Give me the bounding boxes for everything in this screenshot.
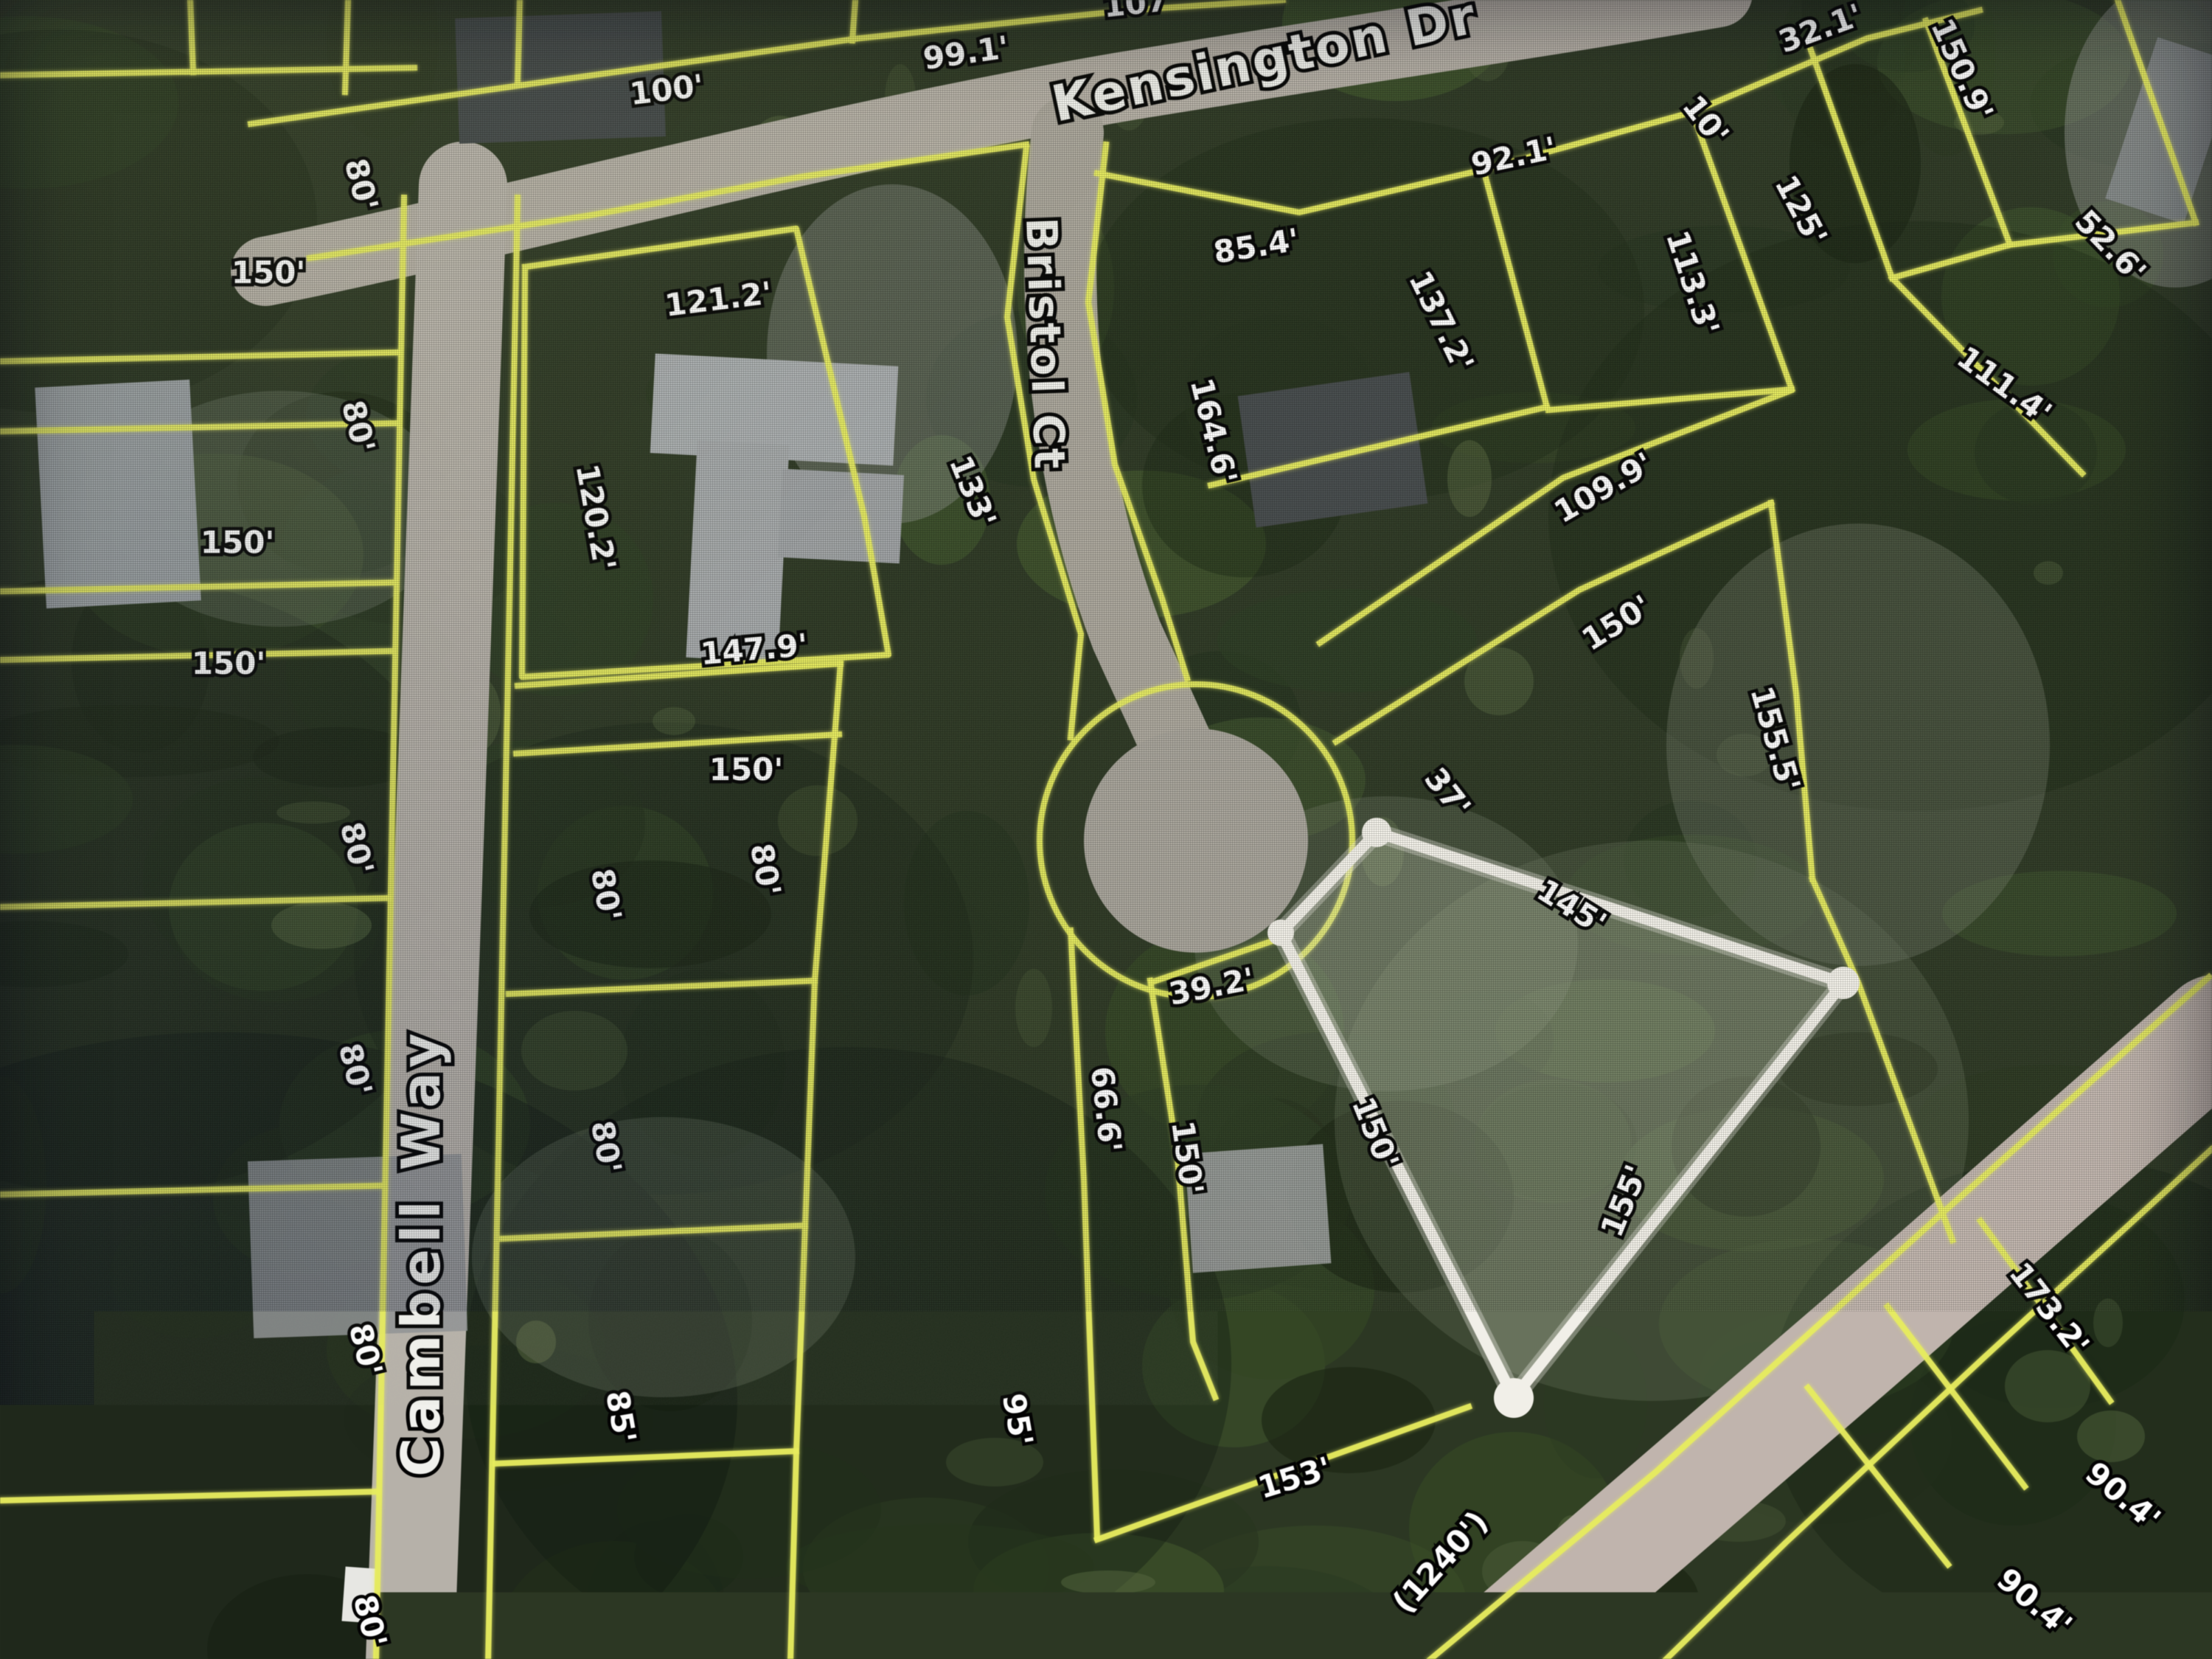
grain-overlay: [0, 0, 2212, 1659]
copyright-watermark: ©2023 Copyright PMAR: [10, 1571, 655, 1638]
aerial-plat-map: 107'99.1'100'92.1'32.1'150.9'10'125'113.…: [0, 0, 2212, 1659]
parcel-map: 107'99.1'100'92.1'32.1'150.9'10'125'113.…: [0, 0, 2212, 1659]
